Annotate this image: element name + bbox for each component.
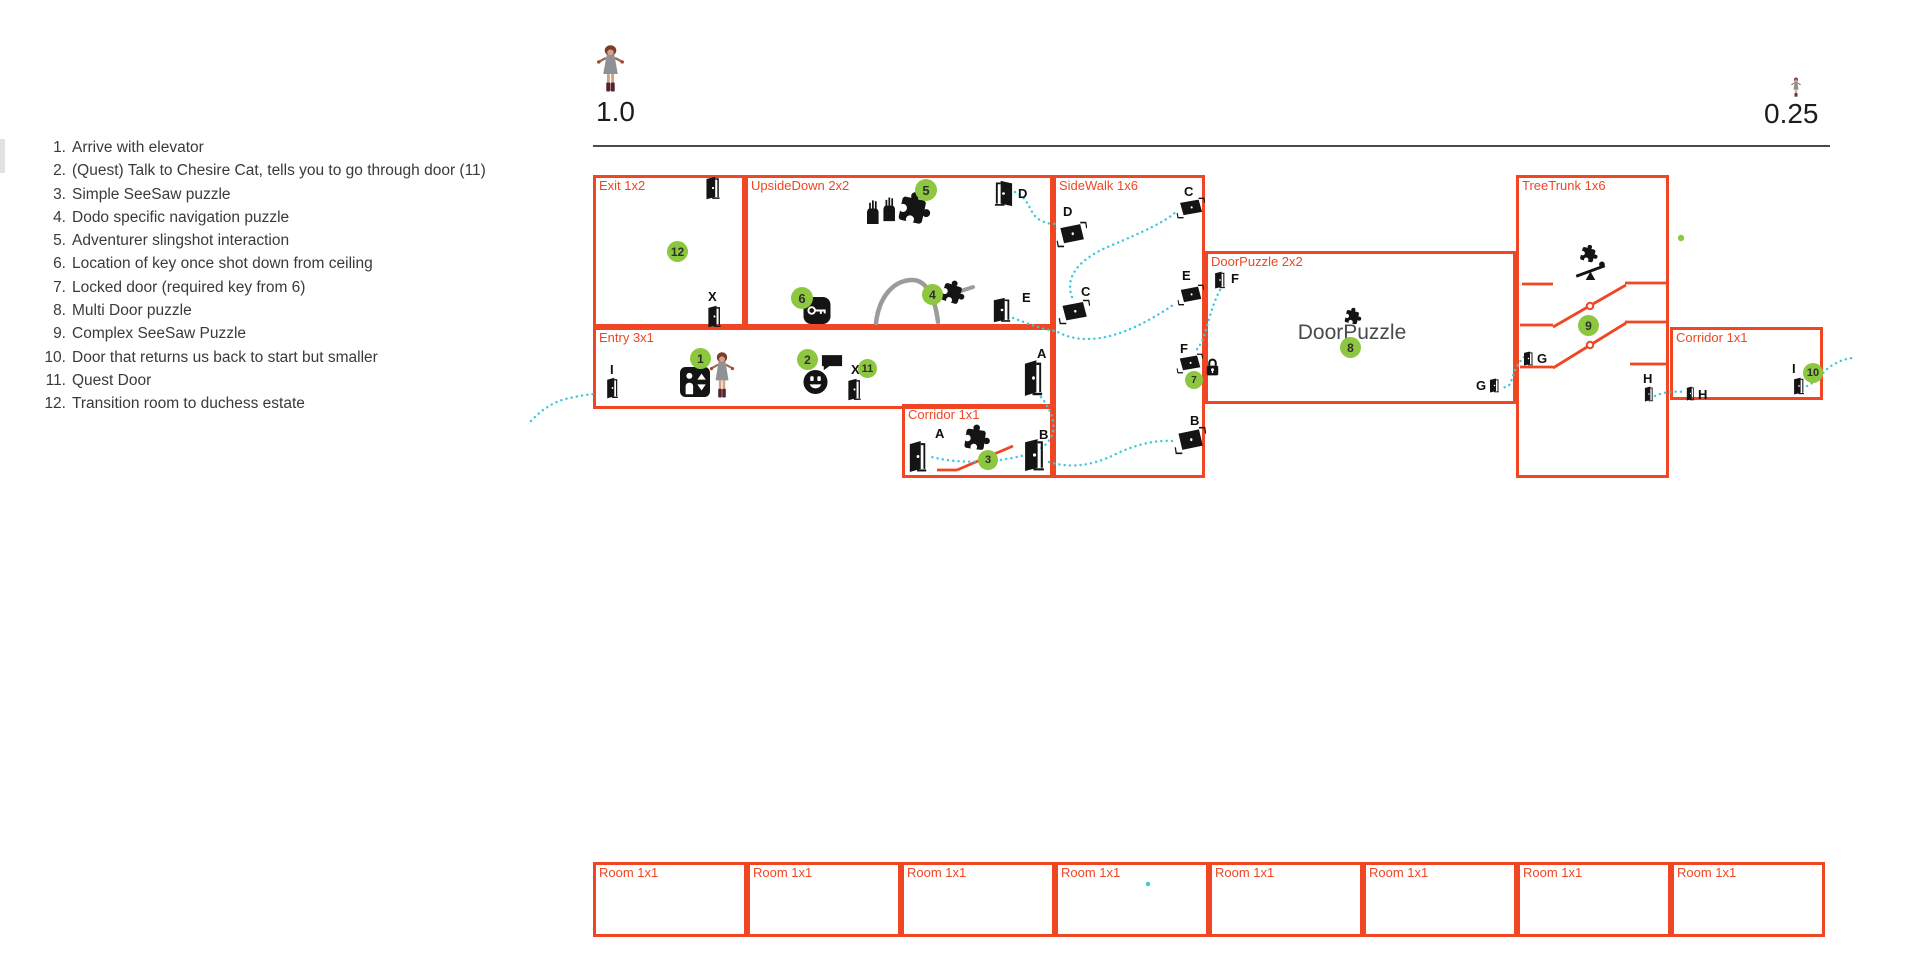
door-letter-E: E	[1022, 290, 1031, 305]
door-letter-B: B	[1190, 413, 1199, 428]
door-E-icon	[1177, 284, 1204, 306]
door-I-icon	[1793, 377, 1805, 395]
player-character-icon	[709, 351, 735, 398]
door-letter-G: G	[1476, 378, 1486, 393]
marker-11: 11	[858, 359, 877, 378]
scale-girl-small-icon	[1791, 77, 1801, 97]
door-letter-E: E	[1182, 268, 1191, 283]
green-dot	[1678, 235, 1684, 241]
padlock-icon	[1206, 357, 1219, 377]
flat-door-glyph	[1177, 284, 1204, 306]
door-glyph	[705, 176, 721, 200]
door-C-icon	[1058, 299, 1090, 325]
marker-7: 7	[1185, 371, 1203, 389]
door-G-icon	[1523, 351, 1534, 366]
door-B-icon	[1174, 426, 1206, 455]
door-letter-D: D	[1063, 204, 1072, 219]
door-letter-B: B	[1039, 427, 1048, 442]
door-G-icon	[1489, 378, 1500, 393]
elevator-icon	[680, 367, 710, 397]
door-glyph	[1023, 438, 1046, 472]
scale-girl-large-icon	[596, 44, 625, 92]
cheshire-cat-talk-icon	[803, 369, 828, 395]
door-A-icon	[908, 440, 928, 473]
door-glyph	[992, 297, 1012, 323]
marker-4: 4	[922, 284, 943, 305]
seesaw-pivot	[1587, 342, 1593, 348]
flat-door-glyph	[1176, 197, 1205, 219]
door-letter-D: D	[1018, 186, 1027, 201]
marker-6: 6	[791, 287, 813, 309]
route-path-8	[1501, 357, 1524, 387]
seesaw-pivot	[1587, 303, 1593, 309]
door-letter-I: I	[610, 362, 614, 377]
flat-door-glyph	[1174, 426, 1206, 455]
route-path-6	[1013, 303, 1176, 339]
level-design-map: 1.Arrive with elevator2.(Quest) Talk to …	[0, 0, 1920, 974]
door-D-icon	[1056, 221, 1087, 248]
marker-10: 10	[1803, 363, 1823, 383]
route-path-9	[1655, 392, 1686, 396]
seesaw-icon	[1574, 261, 1607, 281]
flat-door-glyph	[1058, 299, 1090, 325]
marker-8: 8	[1340, 337, 1361, 358]
door-letter-A: A	[935, 426, 944, 441]
door-X-icon	[847, 378, 862, 401]
door-C-icon	[1176, 197, 1205, 219]
route-path-3	[1049, 441, 1173, 466]
door-glyph	[1793, 377, 1805, 395]
door-H-icon	[1644, 386, 1654, 402]
door-letter-F: F	[1231, 271, 1239, 286]
door-glyph	[847, 378, 862, 401]
marker-9: 9	[1578, 315, 1599, 336]
puzzle-piece-icon	[1340, 304, 1365, 328]
door-F-icon	[1214, 271, 1226, 289]
door-glyph	[1023, 359, 1044, 397]
door-glyph	[908, 440, 928, 473]
speech-bubble-icon	[821, 354, 843, 371]
marker-12: 12	[667, 241, 688, 262]
door-exit-icon	[705, 176, 721, 200]
door-glyph	[1686, 386, 1695, 401]
door-letter-C: C	[1184, 184, 1193, 199]
door-I-icon	[606, 377, 619, 399]
door-letter-H: H	[1698, 387, 1707, 402]
flat-door-glyph	[1056, 221, 1087, 248]
marker-2: 2	[797, 349, 818, 370]
door-H-icon	[1686, 386, 1695, 401]
marker-3: 3	[978, 450, 998, 470]
door-glyph	[993, 180, 1014, 207]
door-letter-I: I	[1792, 361, 1796, 376]
door-D-icon	[993, 180, 1014, 207]
connections-overlay	[0, 0, 1920, 974]
door-letter-A: A	[1037, 346, 1046, 361]
route-path-1	[531, 394, 594, 421]
door-glyph	[707, 305, 722, 328]
door-letter-F: F	[1180, 341, 1188, 356]
door-A-icon	[1023, 359, 1044, 397]
cyan-dot	[1146, 882, 1150, 886]
door-letter-H: H	[1643, 371, 1652, 386]
door-E-icon	[992, 297, 1012, 323]
door-letter-G: G	[1537, 351, 1547, 366]
door-letter-C: C	[1081, 284, 1090, 299]
door-glyph	[1489, 378, 1500, 393]
door-glyph	[1214, 271, 1226, 289]
door-glyph	[606, 377, 619, 399]
door-glyph	[1644, 386, 1654, 402]
door-X-icon	[707, 305, 722, 328]
marker-5: 5	[915, 179, 937, 201]
door-letter-X: X	[708, 289, 717, 304]
marker-1: 1	[690, 348, 711, 369]
door-B-icon	[1023, 438, 1046, 472]
door-glyph	[1523, 351, 1534, 366]
